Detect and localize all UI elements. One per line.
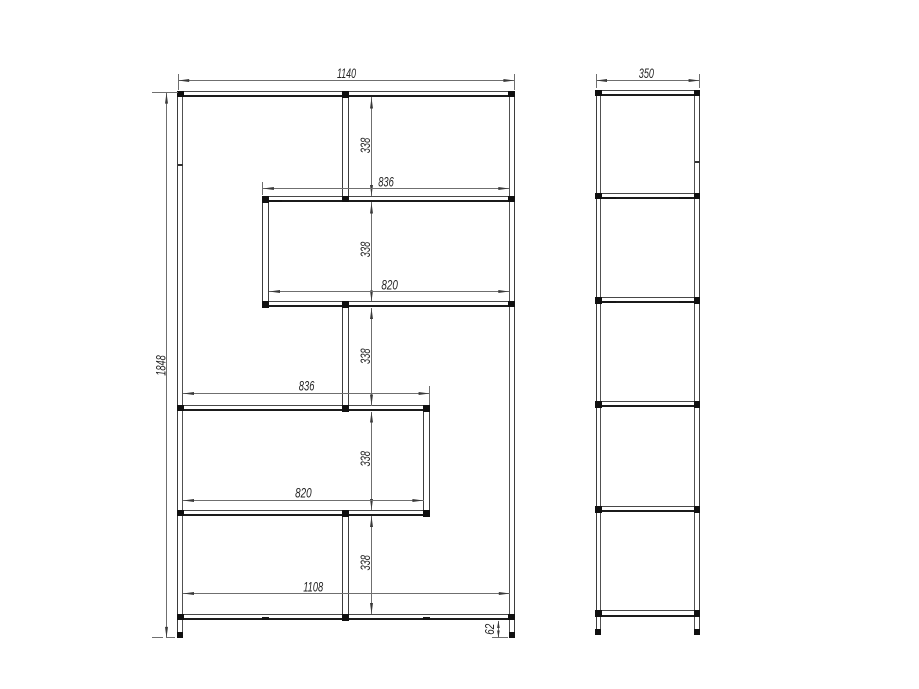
svg-text:1140: 1140 xyxy=(337,66,356,81)
svg-text:836: 836 xyxy=(299,378,315,393)
svg-text:820: 820 xyxy=(295,486,312,501)
svg-text:338: 338 xyxy=(358,451,373,467)
svg-text:338: 338 xyxy=(358,348,373,364)
svg-text:350: 350 xyxy=(639,66,655,81)
svg-text:836: 836 xyxy=(378,174,394,189)
svg-text:338: 338 xyxy=(358,241,373,257)
svg-text:338: 338 xyxy=(358,555,373,571)
svg-text:62: 62 xyxy=(483,624,497,635)
svg-text:338: 338 xyxy=(358,137,373,153)
svg-text:820: 820 xyxy=(381,277,398,292)
svg-text:1108: 1108 xyxy=(303,580,323,595)
svg-text:1848: 1848 xyxy=(154,355,169,376)
